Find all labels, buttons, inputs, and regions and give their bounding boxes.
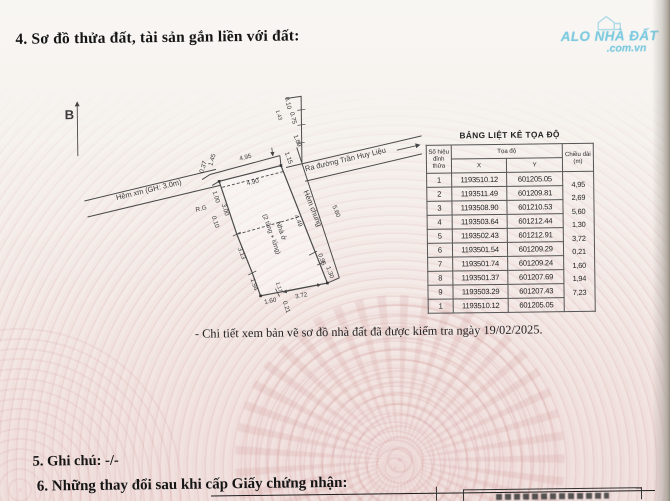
section6-heading: 6. Những thay đổi sau khi cấp Giấy chứng… [37,475,348,496]
cell-x: 1193501.37 [453,270,509,285]
dim-label: 1.43 [274,109,283,121]
dim-label: 1.89 [292,134,303,148]
coordinate-table-title: BẢNG LIỆT KÊ TỌA ĐỘ [426,129,594,141]
cell-y: 601209.81 [507,186,563,201]
col-header-x: X [451,158,507,173]
col-header-y: Y [507,158,563,173]
cell-x: 1193503.29 [453,284,509,299]
col-header-point-no: Số hiệu đỉnh thửa [426,145,451,173]
cell-x: 1193502.43 [452,228,508,243]
cell-y: 601210.53 [507,200,563,215]
cell-no: 5 [427,229,452,243]
cell-y: 601209.24 [508,256,564,271]
dim-label: 1.15 [283,151,294,165]
col-header-length: Chiều dài (m) [562,143,593,171]
col-header-coords: Tọa độ [451,144,562,159]
section5-heading: 5. Ghi chú: -/- [32,453,118,471]
cell-x: 1193510.12 [451,172,507,187]
boundary-marker-label: R.G [195,204,208,213]
edge-length: 1,60 [564,261,594,269]
dim-label: 1.45 [207,153,217,167]
edge-length: 0,21 [564,248,594,256]
coordinate-table: BẢNG LIỆT KÊ TỌA ĐỘ Số hiệu đỉnh thửa Tọ… [426,129,596,314]
page-content: 4. Sơ đồ thửa đất, tài sản gắn liền với … [0,0,670,501]
cell-x: 1193503.64 [452,214,508,229]
cell-no: 1 [428,299,453,313]
table-header-row: Số hiệu đỉnh thửa Tọa độ Chiều dài (m) [426,143,593,159]
col-header-point-no-l2: đỉnh thửa [433,156,446,170]
edge-length: 4,95 [563,180,593,188]
house-icon [594,14,624,30]
parcel-diagram: B Hẻm xm (GH: 3.0m) Ra đường Trần Huy Li… [28,84,431,339]
dim-label: 0.75 [288,111,298,125]
cell-y: 601209.29 [508,242,564,257]
dim-label: 0.10 [283,96,293,110]
col-header-length-l2: (m) [573,157,582,164]
edge-length: 2,69 [563,194,593,202]
clipped-table-fragment [463,487,642,501]
edge-length: 7,23 [565,288,595,296]
dim-label: 1.00 [211,190,222,204]
cell-no: 4 [427,215,452,229]
cell-no: 8 [428,271,453,285]
edge-length: 3,72 [564,234,594,242]
table-row: 1 1193510.12 601205.05 4,95 2,69 5,60 1,… [427,171,594,187]
coordinate-table-grid: Số hiệu đỉnh thửa Tọa độ Chiều dài (m) X… [426,143,596,314]
cell-x: 1193501.54 [452,242,508,257]
north-label: B [65,107,75,122]
cell-no: 3 [427,201,452,215]
street-label: Ra đường Trần Huy Liệu [304,146,387,174]
dim-label: 5.60 [330,204,341,218]
cell-no: 9 [428,285,453,299]
edge-length: 5,60 [564,207,594,215]
edge-length: 1,94 [564,275,594,283]
clipped-table-vline [436,487,437,501]
dim-label: 3.72 [295,291,309,300]
cell-y: 601212.44 [507,214,563,229]
section4-heading: 4. Sơ đồ thửa đất, tài sản gắn liền với … [15,27,299,48]
dim-label: 0.10 [210,215,221,229]
clipped-text-smudge [496,493,609,500]
cell-y: 601207.43 [508,284,564,299]
alley-shared-label: Hẻm chung [302,189,325,228]
cell-y: 601205.05 [508,298,564,313]
dim-label: 4.95 [239,153,253,163]
cell-x: 1193510.12 [453,298,509,313]
cell-y: 601212.91 [508,228,564,243]
cell-y: 601207.69 [508,270,564,285]
cell-no: 1 [427,173,452,187]
alley-west-label: Hẻm xm (GH: 3.0m) [115,177,183,202]
dim-label: 1.60 [264,296,278,305]
scan-edge-shadow [652,0,670,501]
inspection-note: - Chi tiết xem bản vẽ sơ đồ nhà đất đã đ… [195,322,543,341]
edge-length-column: 4,95 2,69 5,60 1,30 3,72 0,21 1,60 1,94 … [563,171,596,311]
cell-x: 1193511.49 [451,186,507,201]
cell-no: 7 [428,257,453,271]
dim-label: 0.21 [281,300,292,314]
cell-x: 1193501.74 [452,256,508,271]
alo-nha-dat-logo: ALO NHÀ ĐẤT .com.vn [557,14,661,55]
cell-y: 601205.05 [507,172,563,187]
scanned-certificate-page: 4. Sơ đồ thửa đất, tài sản gắn liền với … [0,0,670,501]
edge-length: 1,30 [564,221,594,229]
cell-x: 1193508.90 [452,200,508,215]
cell-no: 2 [427,187,452,201]
cell-no: 6 [427,243,452,257]
